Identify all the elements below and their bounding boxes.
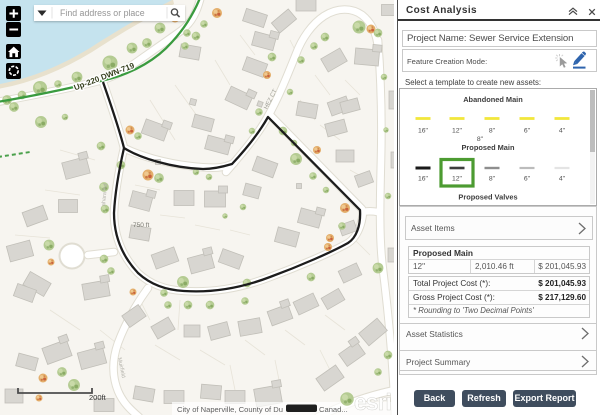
svg-text:12": 12" xyxy=(452,175,463,182)
svg-text:6": 6" xyxy=(524,127,531,134)
svg-text:8": 8" xyxy=(489,175,496,182)
svg-text:4": 4" xyxy=(559,127,566,134)
svg-text:City of Naperville, County of: City of Naperville, County of Du xyxy=(177,405,283,414)
svg-text:esri: esri xyxy=(354,389,391,415)
svg-text:Proposed Valves: Proposed Valves xyxy=(458,192,517,201)
svg-text:750 ft: 750 ft xyxy=(133,222,149,229)
svg-text:Canad...: Canad... xyxy=(319,405,348,414)
svg-text:16": 16" xyxy=(418,127,429,134)
svg-text:Proposed Main: Proposed Main xyxy=(462,143,515,152)
svg-text:8": 8" xyxy=(477,136,484,143)
svg-text:Find address or place: Find address or place xyxy=(60,8,145,18)
svg-text:200ft: 200ft xyxy=(89,393,107,402)
svg-text:4": 4" xyxy=(559,175,566,182)
svg-text:12": 12" xyxy=(452,127,463,134)
svg-text:16": 16" xyxy=(418,175,429,182)
svg-text:8": 8" xyxy=(489,127,496,134)
svg-text:6": 6" xyxy=(524,175,531,182)
